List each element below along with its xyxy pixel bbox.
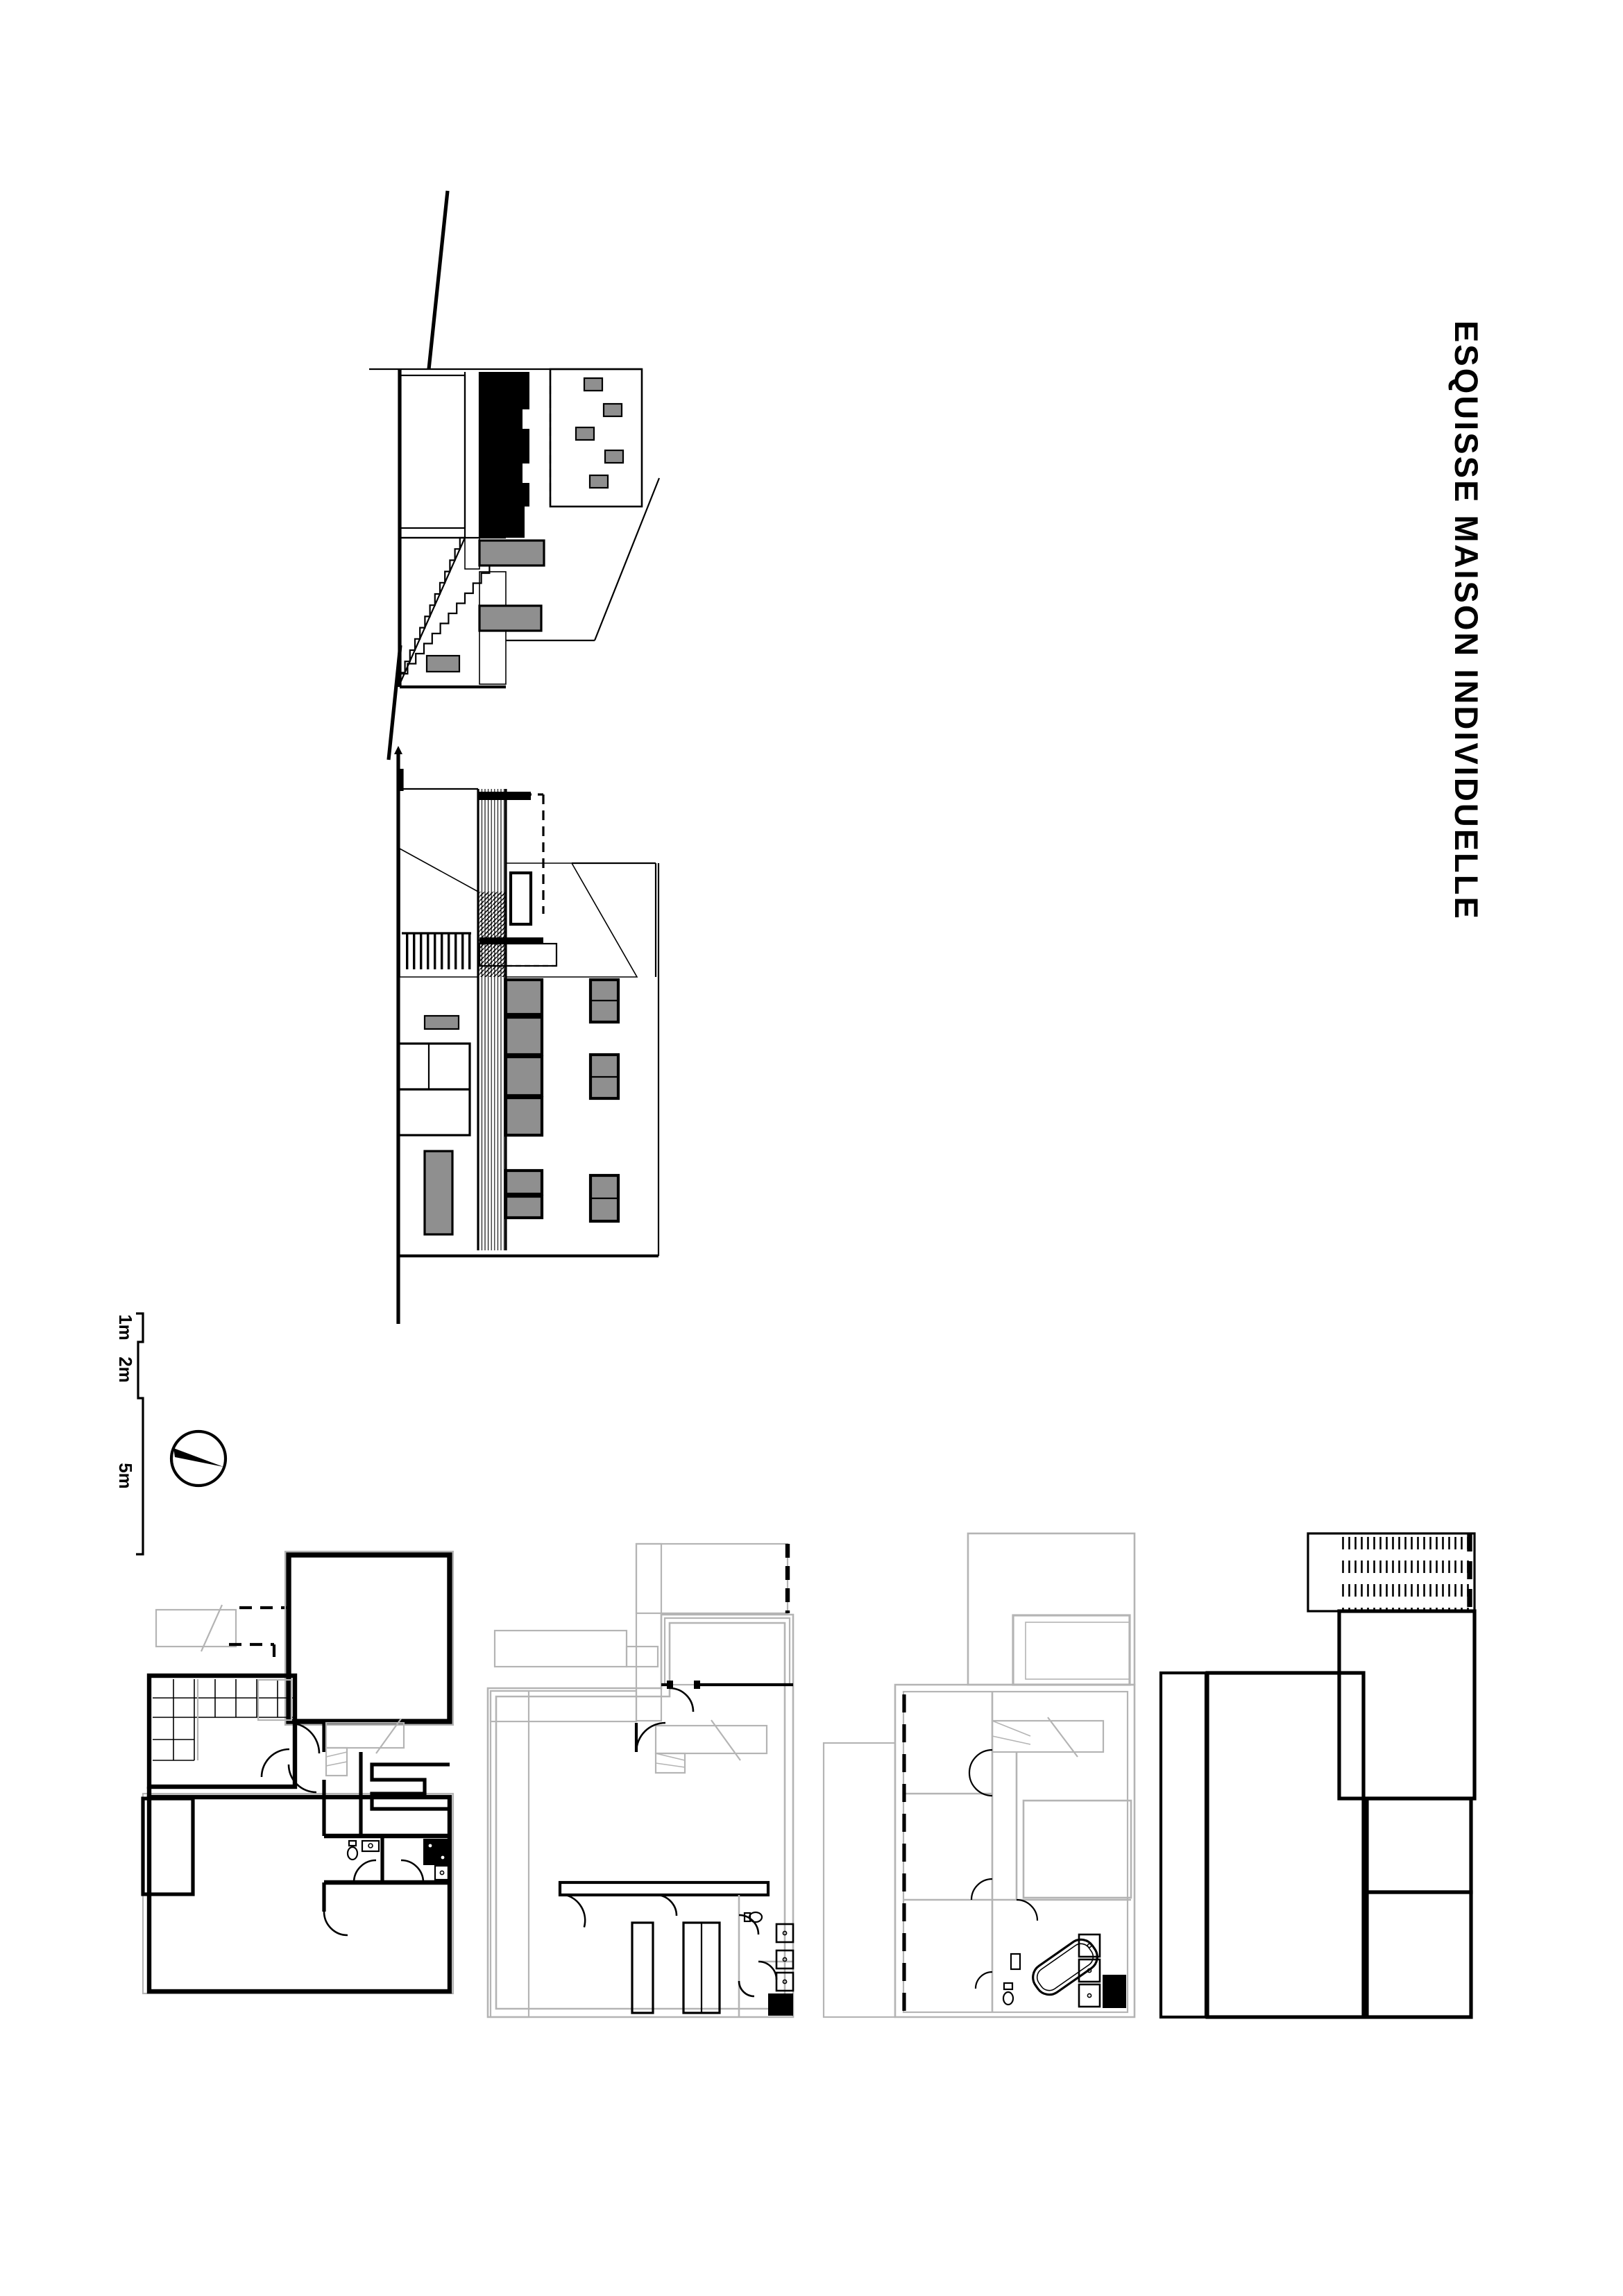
stairs [656,1720,767,1773]
gravel-roof-upper [1339,1611,1475,1798]
elevation-section-drawing [361,160,687,791]
side-windows [590,980,618,1221]
roof-hatch [400,849,656,977]
deck-strip-right [1367,1798,1471,1892]
floor-plan-1 [132,1544,458,2023]
exterior-stair [156,1605,289,1657]
closet-shelving [372,1764,450,1809]
corridor-stair [326,1719,404,1776]
scale-label-1m: 1m [115,1314,136,1341]
floor-plan-2 [482,1537,801,2023]
interior-walls [560,1681,793,2017]
kitchen-counters [153,1679,293,1760]
terrain-line [389,191,448,791]
outer-walls [488,1615,793,2017]
scale-bar: 1m 2m 5m [104,1304,173,1568]
window-facade [550,369,642,507]
deck-hatch [1023,1801,1131,1898]
bathroom-fixtures [348,1839,450,1880]
door-swings [559,1688,776,1996]
interior-walls [324,1721,450,1912]
left-facade-details [398,1016,470,1234]
balcony-bars [427,538,544,684]
outer-walls [143,1551,453,1993]
stairs [992,1717,1103,1757]
exterior-stair [495,1631,658,1667]
floor-plan-3 [822,1513,1155,2026]
door-swings [969,1750,1037,1989]
dark-core-volume [479,372,550,538]
deck-strip-left [1161,1673,1206,2017]
deck-band-top [1308,1533,1475,1611]
curtain-wall-panes [506,980,542,1218]
north-arrow-icon [165,1425,235,1494]
room-dividers [903,1692,1131,2012]
roof-plan [1159,1513,1488,2026]
scale-label-5m: 5m [115,1463,136,1489]
ground-line [394,746,478,1324]
wardrobes [632,1923,720,2013]
door-swings [262,1723,423,1935]
scale-bracket [136,1313,143,1554]
bathroom-fixtures [1003,1934,1126,2008]
drawing-sheet: ESQUISSE MAISON INDIVIDUELLE 1m 2m 5m [0,0,1623,2296]
elevation-facade-drawing [385,746,697,1332]
gravel-roof-lower [1367,1892,1471,2017]
sheet-title: ESQUISSE MAISON INDIVIDUELLE [1447,321,1486,917]
scale-label-2m: 2m [115,1357,136,1383]
louver-wall [400,372,479,538]
